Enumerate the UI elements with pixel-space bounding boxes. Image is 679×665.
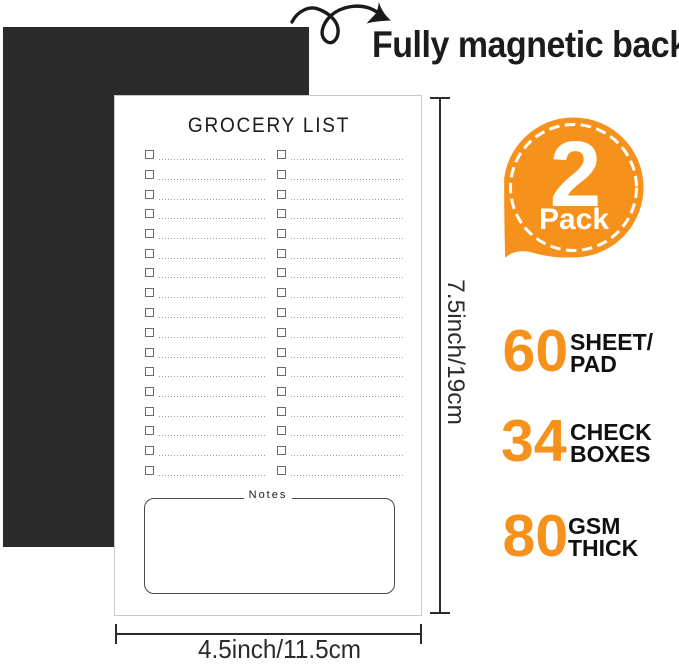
svg-text:Pack: Pack — [539, 203, 609, 236]
